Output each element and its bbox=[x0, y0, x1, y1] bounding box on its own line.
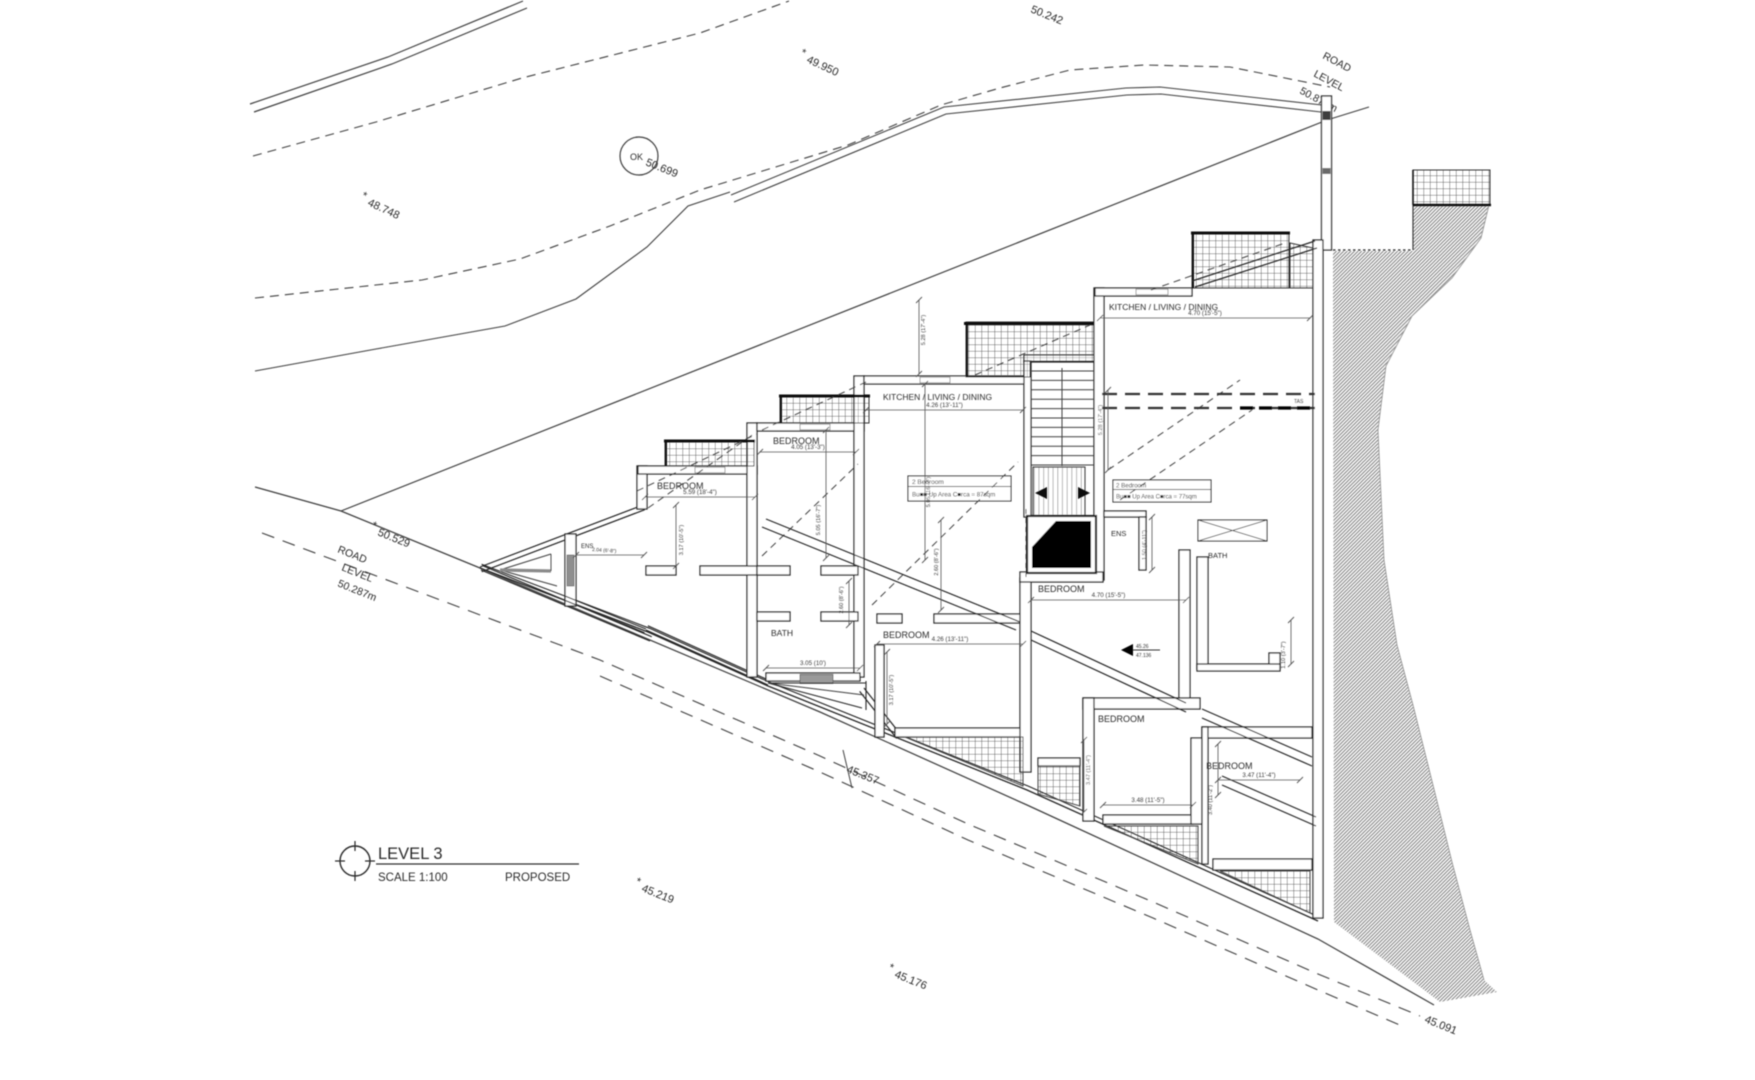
svg-text:1.10 (3'-7"): 1.10 (3'-7") bbox=[1281, 641, 1287, 668]
svg-text:3.05 (10'): 3.05 (10') bbox=[800, 660, 826, 667]
svg-text:3.40 (11'-2"): 3.40 (11'-2") bbox=[1208, 785, 1214, 815]
svg-text:1.50 (4'-11"): 1.50 (4'-11") bbox=[1142, 530, 1148, 560]
svg-text:TAS: TAS bbox=[1294, 399, 1304, 405]
svg-text:3.47 (11'-4"): 3.47 (11'-4") bbox=[1242, 772, 1275, 779]
svg-text:3.48 (11'-5"): 3.48 (11'-5") bbox=[1131, 797, 1164, 804]
svg-text:OK: OK bbox=[630, 152, 643, 162]
svg-text:5.28 (17'-4"): 5.28 (17'-4") bbox=[1098, 405, 1104, 436]
svg-text:BEDROOM: BEDROOM bbox=[1206, 761, 1253, 771]
svg-text:3.17 (10'-5"): 3.17 (10'-5") bbox=[889, 675, 895, 706]
svg-text:KITCHEN / LIVING / DINING: KITCHEN / LIVING / DINING bbox=[883, 392, 992, 402]
svg-text:PROPOSED: PROPOSED bbox=[505, 872, 570, 884]
svg-text:4.26 (13'-11"): 4.26 (13'-11") bbox=[932, 636, 969, 643]
svg-text:45.26: 45.26 bbox=[1136, 644, 1149, 650]
svg-text:BEDROOM: BEDROOM bbox=[883, 630, 930, 640]
svg-text:5.05 (16'-7"): 5.05 (16'-7") bbox=[926, 477, 932, 508]
svg-text:Bu■■ Up Area C■rca = 87sqm: Bu■■ Up Area C■rca = 87sqm bbox=[912, 492, 995, 499]
svg-text:LEVEL 3: LEVEL 3 bbox=[378, 845, 443, 863]
svg-text:47.136: 47.136 bbox=[1136, 653, 1152, 659]
svg-text:2.60 (8'-6"): 2.60 (8'-6") bbox=[934, 548, 940, 575]
svg-text:BATH: BATH bbox=[771, 628, 793, 638]
svg-text:4.26 (13'-11"): 4.26 (13'-11") bbox=[926, 402, 963, 409]
svg-text:5.05 (16'-7"): 5.05 (16'-7") bbox=[816, 505, 822, 536]
svg-text:4.70 (15'-5"): 4.70 (15'-5") bbox=[1092, 592, 1126, 599]
svg-text:3.17 (10'-5"): 3.17 (10'-5") bbox=[679, 525, 685, 556]
svg-text:ENS: ENS bbox=[1111, 529, 1126, 538]
svg-text:5.28 (17'-4"): 5.28 (17'-4") bbox=[921, 315, 927, 346]
svg-text:Bu■■ Up Area C■rca = 77sqm: Bu■■ Up Area C■rca = 77sqm bbox=[1116, 495, 1197, 501]
svg-text:BEDROOM: BEDROOM bbox=[1038, 584, 1085, 594]
svg-text:KITCHEN / LIVING / DINING: KITCHEN / LIVING / DINING bbox=[1109, 302, 1218, 312]
svg-text:SCALE 1:100: SCALE 1:100 bbox=[378, 872, 448, 884]
svg-text:BEDROOM: BEDROOM bbox=[773, 436, 820, 446]
svg-text:3.47 (11'-4"): 3.47 (11'-4") bbox=[1086, 755, 1092, 785]
svg-text:BEDROOM: BEDROOM bbox=[1098, 714, 1145, 724]
svg-text:2.60 (8'-6"): 2.60 (8'-6") bbox=[839, 586, 845, 613]
svg-text:2 Bedroom: 2 Bedroom bbox=[1116, 483, 1146, 490]
svg-text:BEDROOM: BEDROOM bbox=[657, 481, 704, 491]
svg-text:BATH: BATH bbox=[1208, 551, 1227, 560]
